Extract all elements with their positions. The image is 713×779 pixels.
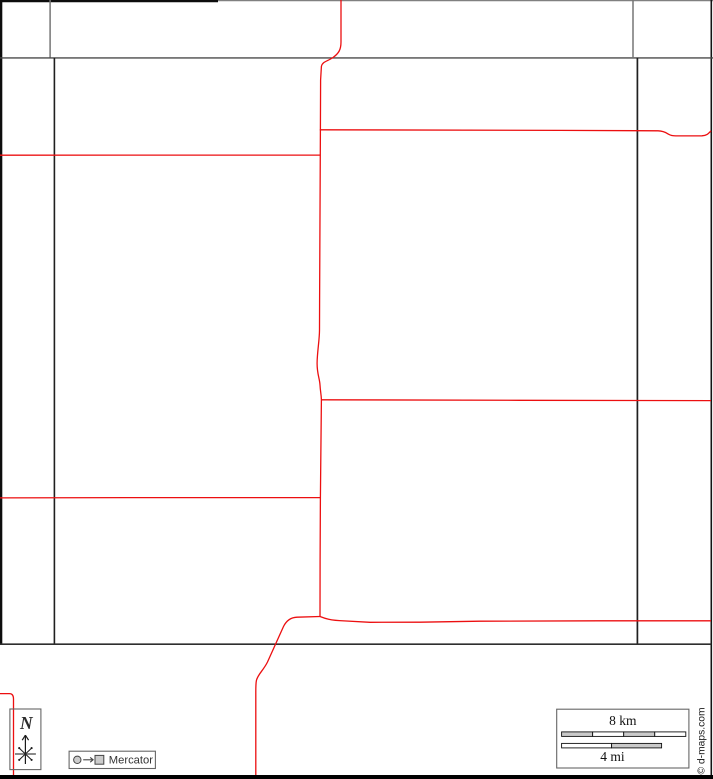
svg-text:© d-maps.com: © d-maps.com: [697, 707, 708, 774]
svg-text:N: N: [19, 713, 34, 733]
svg-text:4 mi: 4 mi: [600, 749, 625, 764]
svg-text:Mercator: Mercator: [109, 755, 153, 767]
svg-text:8 km: 8 km: [609, 713, 637, 728]
